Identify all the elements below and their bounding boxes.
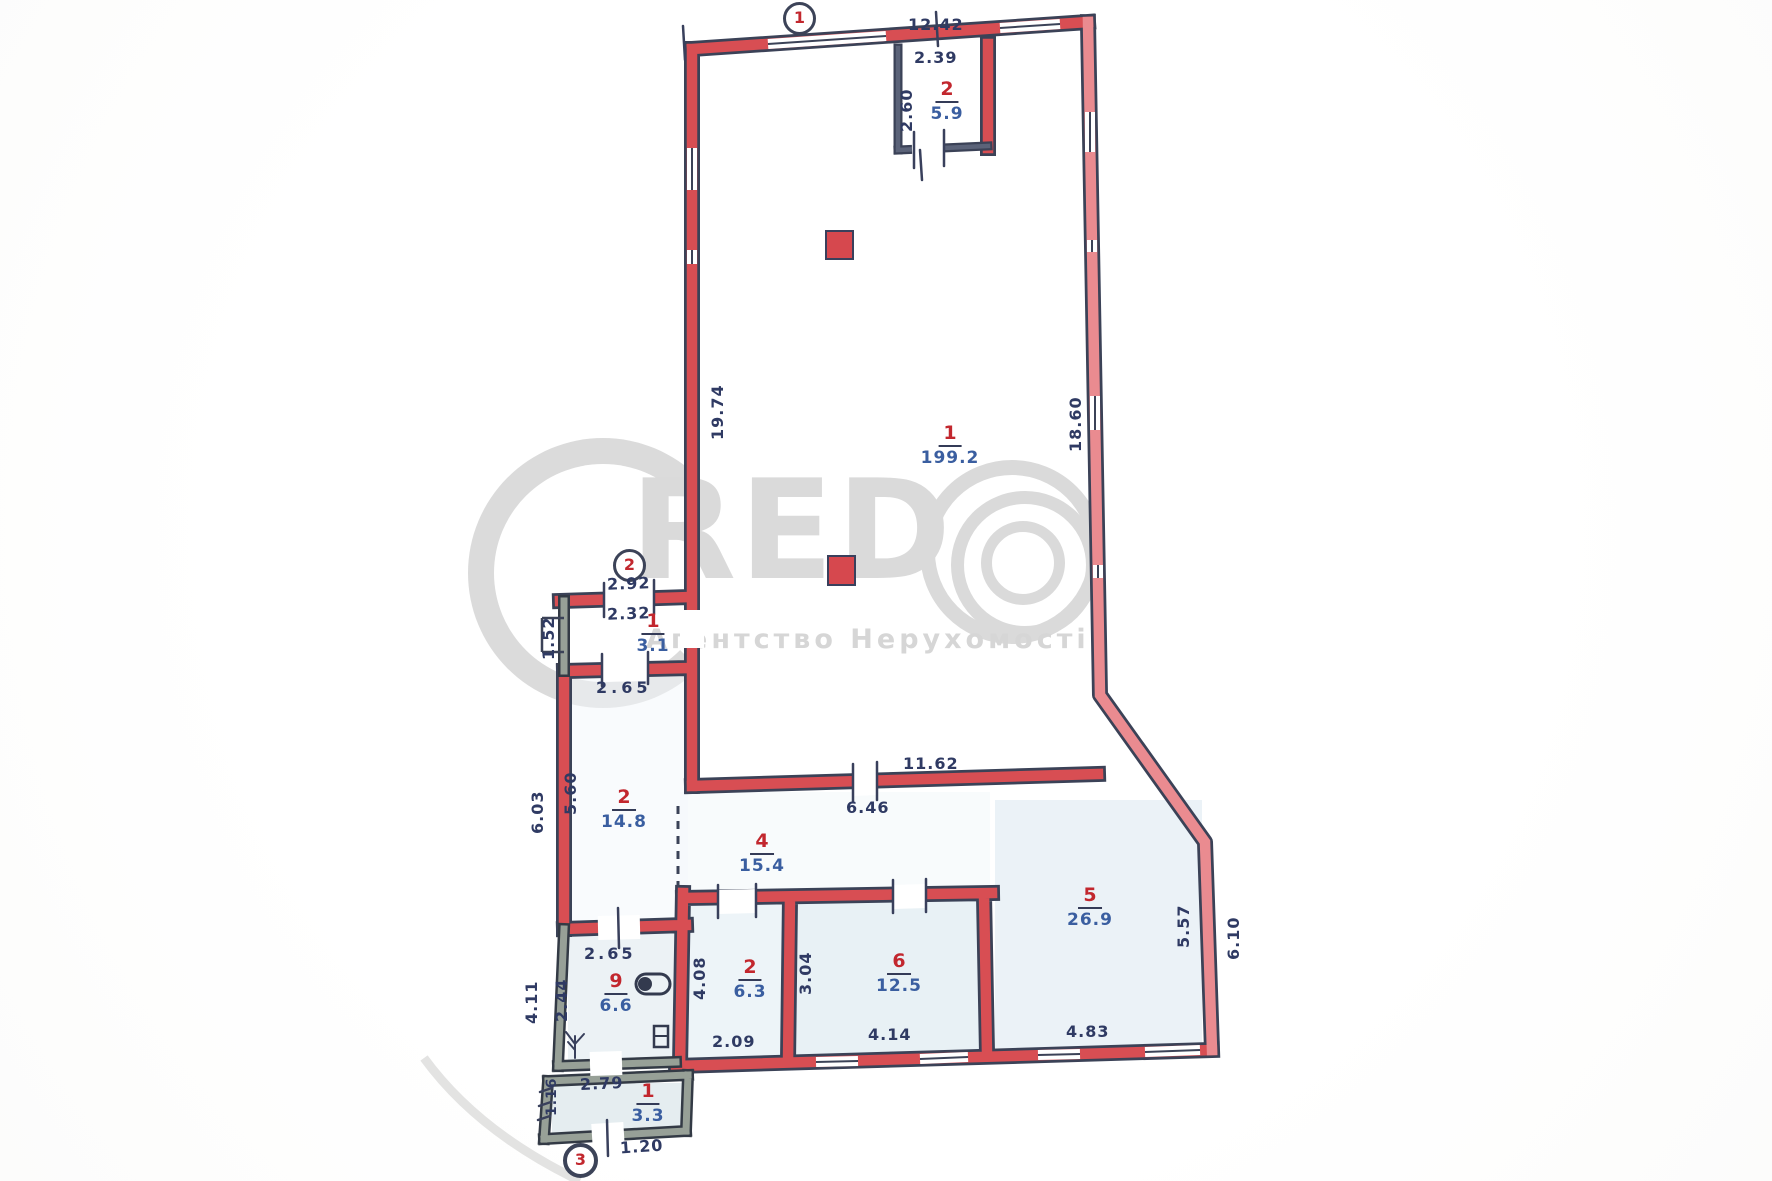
dim-porch-in: 2.32 — [607, 605, 651, 623]
dim-hall-left: 19.74 — [710, 384, 726, 440]
room-number: 2 — [935, 80, 958, 103]
room-area: 3.3 — [631, 1108, 664, 1125]
room-area: 14.8 — [601, 814, 647, 831]
dim-room6-width: 4.14 — [868, 1027, 911, 1043]
dim-room-left-out: 6.03 — [530, 791, 546, 834]
dim-boiler-out: 4.11 — [524, 981, 540, 1024]
dim-annex-left: 1.16 — [545, 1077, 559, 1116]
logo-inner-ring-icon — [981, 521, 1065, 605]
dim-room-left-bottom: 2.65 — [584, 946, 635, 962]
room-label-room4: 4 15.4 — [739, 832, 785, 875]
dim-annex-width: 2.79 — [580, 1075, 624, 1093]
room-area: 3.1 — [636, 638, 669, 655]
dim-boiler-in: 2.44 — [554, 979, 570, 1022]
dim-room2b-right: 3.04 — [798, 952, 814, 995]
room-number: 9 — [604, 972, 627, 995]
room-number: 2 — [612, 788, 635, 811]
dim-room-left-in: 5.60 — [563, 772, 579, 815]
room-area: 26.9 — [1067, 912, 1113, 929]
room-label-room-left: 2 14.8 — [601, 788, 647, 831]
dim-room4-width: 6.46 — [846, 800, 889, 816]
dim-room5-in: 5.57 — [1176, 905, 1192, 948]
room-area: 5.9 — [930, 106, 963, 123]
room-area: 15.4 — [739, 858, 785, 875]
room-label-room5: 5 26.9 — [1067, 886, 1113, 929]
room-number: 6 — [887, 952, 910, 975]
dim-room2b-left: 4.08 — [692, 957, 708, 1000]
dim-porch-depth: 1.52 — [541, 617, 557, 660]
dim-hall-bottom: 11.62 — [903, 756, 959, 772]
dim-room5-out: 6.10 — [1226, 917, 1242, 960]
watermark-logo-rings-icon — [920, 460, 1104, 644]
watermark-subtitle: Агентство Нерухомості — [646, 624, 1090, 655]
dim-room5-width: 4.83 — [1066, 1024, 1109, 1040]
room-number: 1 — [636, 1082, 659, 1105]
room-label-room2b: 2 6.3 — [733, 958, 766, 1001]
dim-room2b-width: 2.09 — [712, 1034, 755, 1050]
dim-hall-right: 18.60 — [1068, 396, 1084, 452]
dim-top-room-width: 2.39 — [914, 50, 957, 66]
room-number: 2 — [738, 958, 761, 981]
room-label-room6: 6 12.5 — [876, 952, 922, 995]
dim-room-left-top: 2.65 — [596, 680, 651, 696]
room-area: 6.6 — [599, 998, 632, 1015]
room-area: 6.3 — [733, 984, 766, 1001]
room-label-hall: 1 199.2 — [921, 424, 980, 467]
room-area: 199.2 — [921, 450, 980, 467]
room-label-top-room: 2 5.9 — [930, 80, 963, 123]
watermark-brand: RED — [630, 462, 954, 600]
dim-annex-door: 1.20 — [619, 1138, 663, 1157]
dim-top-room-depth: 2.60 — [899, 89, 915, 132]
entrance-marker-1: 1 — [783, 2, 816, 35]
room-label-boiler: 9 6.6 — [599, 972, 632, 1015]
dim-porch-out: 2.92 — [607, 575, 651, 593]
room-number: 4 — [750, 832, 773, 855]
room-label-annex: 1 3.3 — [631, 1082, 664, 1125]
watermark: RED Агентство Нерухомості — [0, 0, 1772, 1181]
room-number: 1 — [938, 424, 961, 447]
floor-plan-scan: RED Агентство Нерухомості — [0, 0, 1772, 1181]
entrance-marker-3: 3 — [563, 1143, 598, 1178]
dim-top-width: 12.42 — [908, 17, 964, 33]
room-number: 5 — [1078, 886, 1101, 909]
room-area: 12.5 — [876, 978, 922, 995]
